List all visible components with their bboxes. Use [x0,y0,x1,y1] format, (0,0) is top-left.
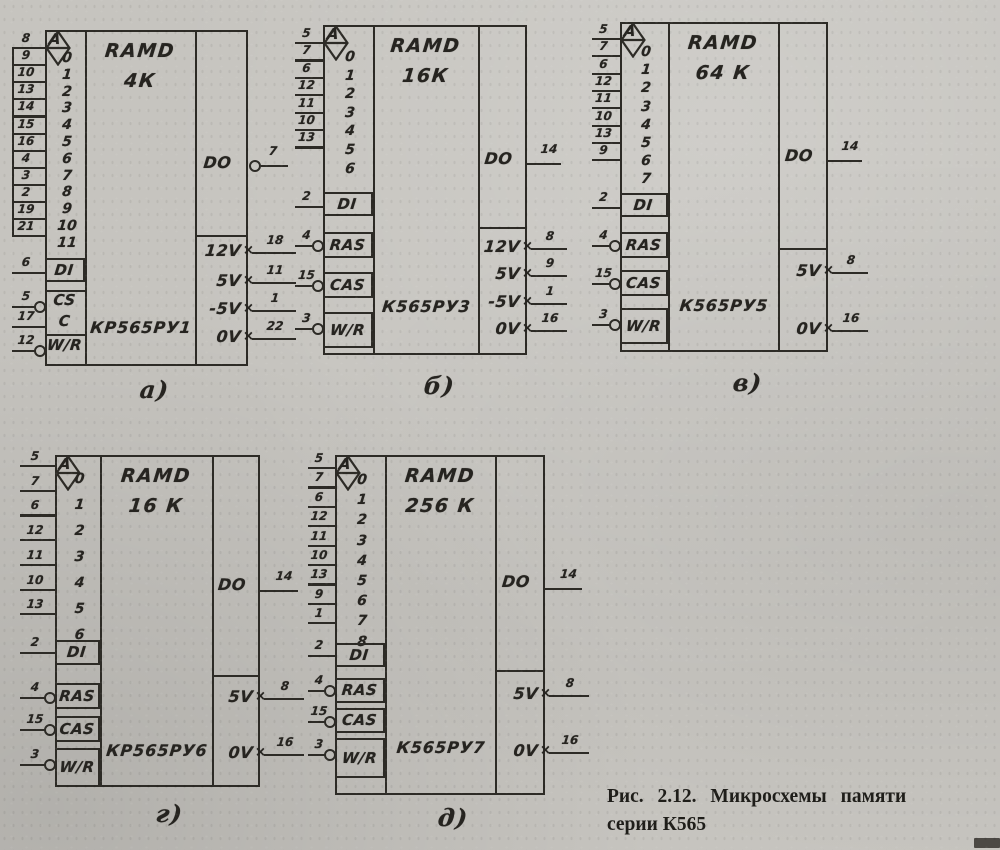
control-label: CS [46,293,83,308]
address-index: 3 [54,101,79,115]
figure-caption: Рис. 2.12. Микросхемы памяти серии К565 [607,783,997,840]
output-label: DO [479,151,518,167]
pin-number: 14 [269,570,298,582]
pin-number: 5 [591,23,615,35]
power-pin-line [264,698,304,700]
pin-number: 15 [591,267,615,279]
address-index: 4 [332,124,367,138]
power-label: 0V [496,743,539,759]
output-pin-line [828,160,862,162]
pin-number: 8 [533,230,566,242]
pin-number: 10 [11,66,40,78]
pin-number: 16 [551,734,588,746]
power-input-marker: × [823,322,834,335]
pin-number: 5 [294,27,318,39]
address-index: 6 [54,152,79,166]
pin-number: 7 [19,475,50,487]
control-pin-stub [308,721,325,723]
pin-number: 11 [254,264,295,276]
pin-number: 15 [294,269,318,281]
pin-number: 9 [11,49,40,61]
address-index: 10 [54,219,79,233]
control-pin-stub [20,697,45,699]
pin-number: 2 [19,636,50,648]
power-input-marker: × [823,264,834,277]
power-label: 5V [479,266,521,282]
address-index: 3 [64,550,94,564]
address-index: 5 [64,602,94,616]
address-index: 0 [54,51,79,65]
pin-number: 11 [591,92,615,104]
address-index: 7 [54,169,79,183]
pin-number: 2 [307,639,330,651]
pin-number: 10 [19,574,50,586]
pin-number: 10 [591,110,615,122]
chip-type-label: RAMD [84,42,196,61]
address-pin-stub [308,467,335,469]
power-label: 0V [213,745,254,761]
pin-number: 4 [294,229,318,241]
pin-number: 10 [294,114,318,126]
inversion-circle [324,749,336,761]
inversion-circle [609,319,621,331]
address-index: 4 [54,118,79,132]
pin-number: 15 [307,705,330,717]
pin-number: 4 [307,674,330,686]
address-index: 1 [332,69,367,83]
pin-number: 13 [307,568,330,580]
pin-number: 8 [266,680,303,692]
address-pin-stub [308,506,335,508]
pin-number: 13 [11,83,40,95]
pin-number: 14 [11,100,40,112]
power-pin-line [252,282,296,284]
subfigure-label-d: д) [437,806,470,830]
pin-number: 1 [307,607,330,619]
control-label: W/R [324,323,371,338]
pin-number: 6 [294,62,318,74]
power-label: 5V [779,263,822,279]
address-index: 2 [64,524,94,538]
address-index: 6 [332,162,367,176]
address-bus-header: A [326,27,340,42]
power-label: 5V [196,273,242,289]
pin-number: 10 [307,549,330,561]
address-index: 5 [344,574,379,588]
power-separator [478,227,527,229]
control-pin-stub [592,283,610,285]
address-index: 1 [629,63,662,77]
output-pin-line [545,588,582,590]
pin-number: 3 [591,308,615,320]
power-input-marker: × [255,746,266,759]
address-pin-stub [308,622,335,624]
inversion-circle [324,685,336,697]
address-index: 2 [332,87,367,101]
figure-caption-line-1: Рис. 2.12. Микросхемы памяти [607,783,997,811]
chip-capacity-label: 16 К [99,497,213,516]
pin-number: 9 [307,588,330,600]
power-input-marker: × [255,690,266,703]
subfigure-label-g: г) [155,802,184,826]
address-bus-header: A [338,457,352,472]
pin-number: 3 [294,312,318,324]
data-input-label: DI [56,645,97,660]
chip-symbol-v: A50716212311410513697DI2RAS4CAS15W/R3DO1… [620,22,828,352]
pin-number: 1 [533,285,566,297]
power-label: -5V [196,301,242,317]
address-index: 8 [54,185,79,199]
chip-symbol-b: A507162123114105136DI2RAS4CAS15W/R3DO141… [323,25,527,355]
power-separator [195,235,248,237]
power-input-marker: × [540,687,551,700]
pin-number: 15 [19,713,50,725]
subfigure-label-b: б) [423,374,456,398]
power-input-marker: × [522,322,533,335]
power-input-marker: × [243,274,254,287]
output-pin-line [260,590,298,592]
control-label: RAS [621,238,666,253]
chip-capacity-label: 64 К [667,64,779,83]
pin-number: 16 [11,135,40,147]
part-number: КР565РУ1 [86,320,196,336]
data-input-pin-stub [12,272,45,274]
address-index: 11 [54,236,79,250]
chip-symbol-g: A507162123114105136DI2RAS4CAS15W/R3DO145… [55,455,260,787]
output-label: DO [213,577,251,593]
chip-symbol-d: A5071621231141051369718DI2RAS4CAS15W/R3D… [335,455,545,795]
pin-number: 13 [294,131,318,143]
power-pin-line [832,330,868,332]
control-label: RAS [336,683,383,698]
address-pin-stub [308,603,335,605]
output-label: DO [779,148,819,164]
inversion-circle [312,323,324,335]
address-index: 6 [344,594,379,608]
inversion-circle [609,240,621,252]
pin-number: 5 [19,450,50,462]
pin-number: 11 [307,530,330,542]
control-pin-stub [20,764,45,766]
part-number: КР565РУ6 [101,743,213,759]
power-pin-line [531,330,567,332]
pin-number: 7 [591,40,615,52]
inversion-circle [312,240,324,252]
control-pin-stub [295,245,313,247]
data-input-pin-stub [308,655,335,657]
control-label: RAS [324,238,371,253]
control-label: C [46,314,83,329]
address-pin-stub [308,583,335,585]
power-label: 5V [496,686,539,702]
address-pin-stub [20,490,55,492]
power-label: 0V [479,321,521,337]
pin-number: 12 [11,334,40,346]
right-column-divider [212,455,214,787]
address-index: 9 [54,202,79,216]
page-number-mark [974,838,1000,848]
address-index: 3 [332,106,367,120]
subfigure-label-a: а) [139,378,170,402]
power-pin-line [549,752,589,754]
pin-number: 3 [11,169,40,181]
control-label: CAS [336,713,383,728]
pin-number: 6 [11,256,40,268]
address-index: 7 [629,172,662,186]
pin-number: 16 [834,312,867,324]
address-pin-stub [20,564,55,566]
pin-number: 17 [11,310,40,322]
pin-number: 14 [554,568,582,580]
inversion-circle [44,724,56,736]
inversion-circle [34,345,46,357]
power-separator [495,670,545,672]
control-label: W/R [336,751,383,766]
address-index: 1 [64,498,94,512]
pin-number: 14 [536,143,561,155]
address-index: 0 [344,473,379,487]
data-input-label: DI [336,648,382,663]
address-bus-line [12,47,14,235]
pin-number: 16 [266,736,303,748]
power-pin-line [832,272,868,274]
pin-number: 3 [19,748,50,760]
pin-number: 9 [591,144,615,156]
address-index: 2 [344,513,379,527]
power-pin-line [549,695,589,697]
control-label: W/R [56,760,98,775]
control-pin-stub [592,245,610,247]
address-index: 5 [332,143,367,157]
pin-number: 2 [11,186,40,198]
control-pin-stub [295,285,313,287]
pin-number: 4 [19,681,50,693]
output-pin-line [261,165,288,167]
address-index: 5 [54,135,79,149]
address-index: 4 [629,118,662,132]
pin-number: 12 [19,524,50,536]
control-label: CAS [56,722,98,737]
pin-number: 11 [19,549,50,561]
data-input-label: DI [621,198,665,213]
pin-number: 2 [591,191,615,203]
power-input-marker: × [243,244,254,257]
pin-number: 15 [11,118,40,130]
chip-type-label: RAMD [667,34,779,53]
chip-symbol-a: A809110213314415516647382919102111DI6CS5… [45,30,248,366]
control-pin-stub [12,326,45,328]
address-index: 0 [332,50,367,64]
address-index: 6 [629,154,662,168]
address-pin-stub [308,525,335,527]
data-input-label: DI [324,197,370,212]
scanned-book-page: A809110213314415516647382919102111DI6CS5… [0,0,1000,850]
chip-type-label: RAMD [372,37,479,56]
address-pin-stub [592,159,620,161]
address-index: 2 [54,85,79,99]
address-index: 5 [629,136,662,150]
address-pin-stub [308,564,335,566]
chip-type-label: RAMD [384,467,496,486]
control-label: CAS [621,276,666,291]
address-pin-stub [308,486,335,488]
data-input-pin-stub [295,206,323,208]
pin-number: 6 [591,58,615,70]
inversion-circle [249,160,261,172]
control-label: W/R [46,338,83,353]
control-pin-stub [308,690,325,692]
chip-capacity-label: 4К [84,72,196,91]
address-index: 0 [629,45,662,59]
figure-caption-line-2: серии К565 [607,811,997,839]
address-pin-stub [20,465,55,467]
control-pin-stub [20,729,45,731]
address-index: 0 [64,472,94,486]
address-bus-header: A [58,457,72,472]
pin-number: 8 [834,254,867,266]
power-label: -5V [479,294,521,310]
power-pin-line [252,310,296,312]
power-label: 5V [213,689,254,705]
subfigure-label-v: в) [732,371,764,395]
pin-number: 11 [294,97,318,109]
pin-number: 16 [533,312,566,324]
pin-number: 18 [254,234,295,246]
pin-number: 12 [294,79,318,91]
address-index: 3 [629,100,662,114]
address-pin-stub [308,545,335,547]
address-bus-header: A [48,32,62,47]
address-index: 4 [344,554,379,568]
pin-number: 2 [294,190,318,202]
address-index: 7 [344,614,379,628]
control-pin-stub [12,350,35,352]
chip-type-label: RAMD [99,467,213,486]
address-index: 4 [64,576,94,590]
power-pin-line [252,338,296,340]
output-label: DO [496,574,536,590]
power-pin-line [252,252,296,254]
power-input-marker: × [522,295,533,308]
chip-capacity-label: 256 К [384,497,496,516]
pin-number: 4 [591,229,615,241]
pin-number: 12 [307,510,330,522]
control-pin-stub [295,328,313,330]
pin-number: 4 [11,152,40,164]
address-index: 1 [344,493,379,507]
power-label: 12V [196,243,242,259]
pin-number: 13 [19,598,50,610]
pin-number: 21 [11,220,40,232]
part-number: К565РУ7 [386,740,496,756]
pin-number: 13 [591,127,615,139]
address-pin-stub [20,613,55,615]
control-pin-stub [592,324,610,326]
power-label: 0V [196,329,242,345]
power-input-marker: × [522,240,533,253]
power-pin-line [531,303,567,305]
power-label: 0V [779,321,822,337]
output-label: DO [196,155,239,171]
pin-number: 7 [257,145,288,157]
data-input-pin-stub [592,207,620,209]
output-pin-line [527,163,561,165]
pin-number: 7 [307,471,330,483]
address-pin-stub [20,589,55,591]
part-number: К565РУ3 [374,299,479,315]
power-input-marker: × [540,744,551,757]
address-pin-stub [295,146,323,148]
power-separator [212,675,260,677]
inversion-circle [44,759,56,771]
power-input-marker: × [243,302,254,315]
control-pin-stub [12,306,35,308]
pin-number: 5 [11,290,40,302]
pin-number: 1 [254,292,295,304]
address-index: 1 [54,68,79,82]
data-input-pin-stub [20,652,55,654]
power-pin-line [531,248,567,250]
power-input-marker: × [243,330,254,343]
pin-number: 14 [837,140,862,152]
address-bus-header: A [623,24,637,39]
pin-number: 5 [307,452,330,464]
power-separator [778,248,828,250]
address-pin-stub [20,539,55,541]
control-pin-stub [308,754,325,756]
power-label: 12V [479,239,521,255]
chip-capacity-label: 16К [372,67,479,86]
inversion-circle [44,692,56,704]
pin-number: 12 [591,75,615,87]
pin-number: 6 [307,491,330,503]
pin-number: 19 [11,203,40,215]
address-pin-stub [12,235,45,237]
control-label: W/R [621,319,666,334]
control-label: CAS [324,278,371,293]
pin-number: 8 [11,32,40,44]
address-index: 2 [629,81,662,95]
control-label: RAS [56,689,98,704]
pin-number: 9 [533,257,566,269]
address-pin-stub [20,514,55,516]
power-pin-line [264,754,304,756]
pin-number: 7 [294,44,318,56]
pin-number: 3 [307,738,330,750]
data-input-label: DI [46,263,82,278]
pin-number: 22 [254,320,295,332]
part-number: К565РУ5 [669,298,779,314]
pin-number: 6 [19,499,50,511]
pin-number: 8 [551,677,588,689]
address-index: 3 [344,534,379,548]
power-pin-line [531,275,567,277]
power-input-marker: × [522,267,533,280]
